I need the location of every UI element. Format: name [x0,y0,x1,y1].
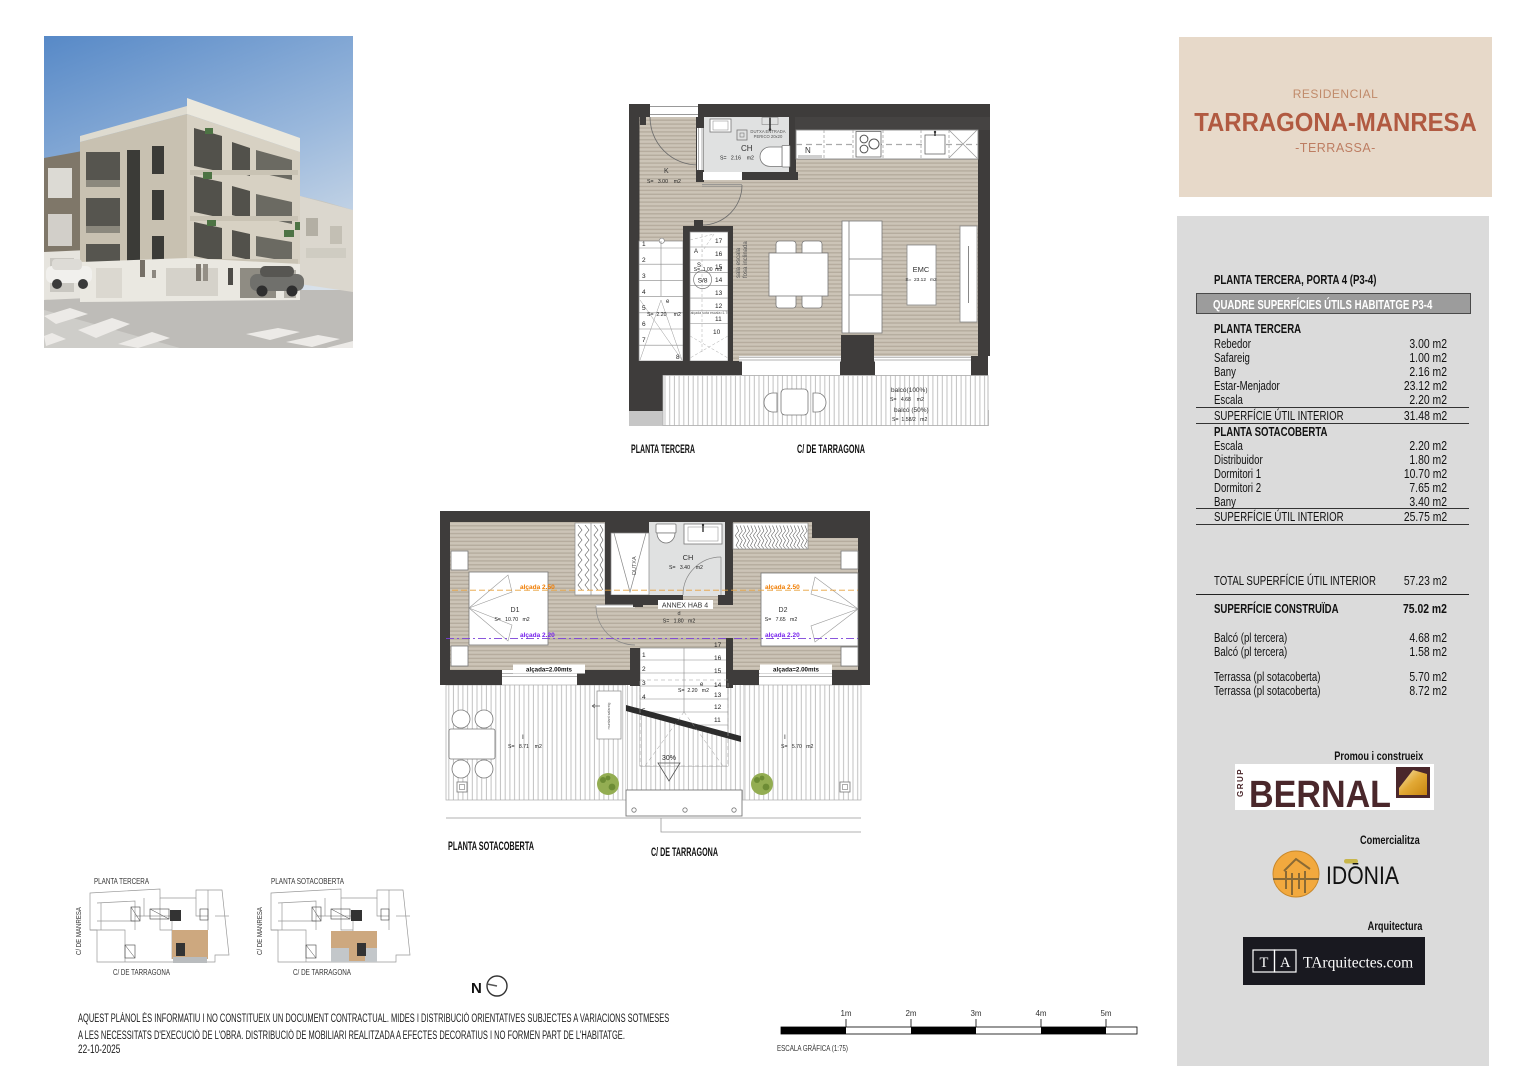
svg-text:5: 5 [642,305,646,312]
svg-text:EMC: EMC [913,265,930,274]
svg-text:S= 8.71 m2: S= 8.71 m2 [508,744,542,750]
svg-text:15: 15 [715,264,723,271]
svg-text:PLANTA SOTACOBERTA: PLANTA SOTACOBERTA [448,839,534,853]
svg-text:sala escala: sala escala [736,247,742,278]
svg-text:7: 7 [642,337,646,344]
svg-text:PLANTA TERCERA: PLANTA TERCERA [94,876,149,886]
svg-text:C/ DE MANRESA: C/ DE MANRESA [74,907,83,955]
svg-text:balcó(100%): balcó(100%) [891,387,928,394]
svg-text:S= 2.16 m2: S= 2.16 m2 [720,156,754,162]
svg-text:PLANTA TERCERA: PLANTA TERCERA [631,442,695,456]
svg-text:S= 2.20 m2: S= 2.20 m2 [678,688,709,694]
svg-text:13: 13 [715,290,723,297]
svg-text:S= 10.70 m2: S= 10.70 m2 [494,617,529,623]
svg-text:C/ DE TARRAGONA: C/ DE TARRAGONA [651,845,718,859]
svg-text:alçada 2.50: alçada 2.50 [520,584,555,591]
svg-text:S= 1.80 m2: S= 1.80 m2 [663,619,696,625]
svg-text:14: 14 [714,682,722,689]
svg-text:alçada=2.00mts: alçada=2.00mts [526,667,572,674]
svg-text:14: 14 [715,277,723,284]
svg-text:alçada=2.00mts: alçada=2.00mts [773,667,819,674]
svg-text:C/ DE MANRESA: C/ DE MANRESA [255,907,264,955]
svg-text:C/ DE TARRAGONA: C/ DE TARRAGONA [293,967,351,977]
svg-text:1: 1 [642,241,646,248]
svg-text:D1: D1 [511,607,520,614]
svg-text:ANNEX HAB 4: ANNEX HAB 4 [662,603,708,610]
svg-text:alçada 2.50: alçada 2.50 [765,584,800,591]
svg-text:T: T [1260,955,1269,971]
svg-text:S/8: S/8 [698,278,708,285]
svg-text:N: N [471,980,482,997]
svg-text:6: 6 [642,321,646,328]
svg-text:13: 13 [714,692,722,699]
svg-text:S= 23.12 m2: S= 23.12 m2 [905,277,937,283]
svg-text:S= 5.70 m2: S= 5.70 m2 [781,744,814,750]
svg-text:K: K [664,168,669,175]
svg-text:17: 17 [715,238,723,245]
svg-text:17: 17 [714,642,722,649]
svg-text:CH: CH [683,553,694,562]
svg-text:ESCALA GRÀFICA (1:75): ESCALA GRÀFICA (1:75) [777,1043,848,1053]
svg-text:8: 8 [676,354,680,361]
svg-text:I: I [784,734,786,741]
svg-text:2: 2 [642,666,646,673]
svg-text:10: 10 [713,329,721,336]
svg-text:15: 15 [714,668,722,675]
svg-text:alçada 2.20: alçada 2.20 [765,632,800,639]
svg-text:12: 12 [714,704,722,711]
svg-text:PLANTA SOTACOBERTA: PLANTA SOTACOBERTA [271,876,344,886]
svg-text:3: 3 [642,273,646,280]
svg-text:IDŌNIA: IDŌNIA [1326,862,1399,890]
svg-text:11: 11 [715,316,722,323]
svg-text:N: N [805,146,811,155]
svg-text:S= 7.65 m2: S= 7.65 m2 [765,617,798,623]
svg-text:4: 4 [642,694,646,701]
svg-text:TArquitectes.com: TArquitectes.com [1303,955,1413,972]
svg-text:5m: 5m [1100,1009,1111,1018]
svg-text:16: 16 [715,251,723,258]
svg-text:A: A [1280,955,1291,971]
svg-text:PERICO 20x20: PERICO 20x20 [754,134,783,139]
svg-text:30%: 30% [662,755,676,762]
svg-text:GRUP: GRUP [1236,768,1245,797]
svg-text:S= 3.40 m2: S= 3.40 m2 [669,565,703,571]
svg-text:D2: D2 [779,607,788,614]
svg-text:C/ DE TARRAGONA: C/ DE TARRAGONA [797,442,865,456]
svg-text:muntant safareig: muntant safareig [607,703,611,730]
svg-text:I: I [522,734,524,741]
svg-text:16: 16 [714,655,722,662]
svg-text:C/ DE TARRAGONA: C/ DE TARRAGONA [113,967,170,977]
svg-text:d: d [677,611,680,617]
svg-text:S= 3.00 m2: S= 3.00 m2 [647,179,681,185]
svg-text:S= 4.68 m2: S= 4.68 m2 [890,397,924,403]
svg-text:BERNAL: BERNAL [1249,774,1391,810]
svg-text:1: 1 [642,652,646,659]
svg-text:12: 12 [715,303,723,310]
svg-text:alçada sota escala=1.70: alçada sota escala=1.70 [691,311,730,315]
svg-text:11: 11 [714,717,721,724]
svg-text:DUTXA: DUTXA [632,556,638,575]
svg-text:fosa inclinada: fosa inclinada [743,241,749,278]
svg-text:S= 1.58/2 m2: S= 1.58/2 m2 [892,417,927,423]
svg-text:A: A [694,249,698,255]
svg-text:3: 3 [642,680,646,687]
svg-text:2: 2 [642,257,646,264]
svg-text:4m: 4m [1035,1009,1046,1018]
svg-text:CH: CH [741,144,753,153]
svg-text:4: 4 [642,289,646,296]
svg-text:balcó (50%): balcó (50%) [894,407,929,414]
svg-text:S= 2.20 m2: S= 2.20 m2 [647,312,681,318]
svg-text:alçada 2.20: alçada 2.20 [520,632,555,639]
